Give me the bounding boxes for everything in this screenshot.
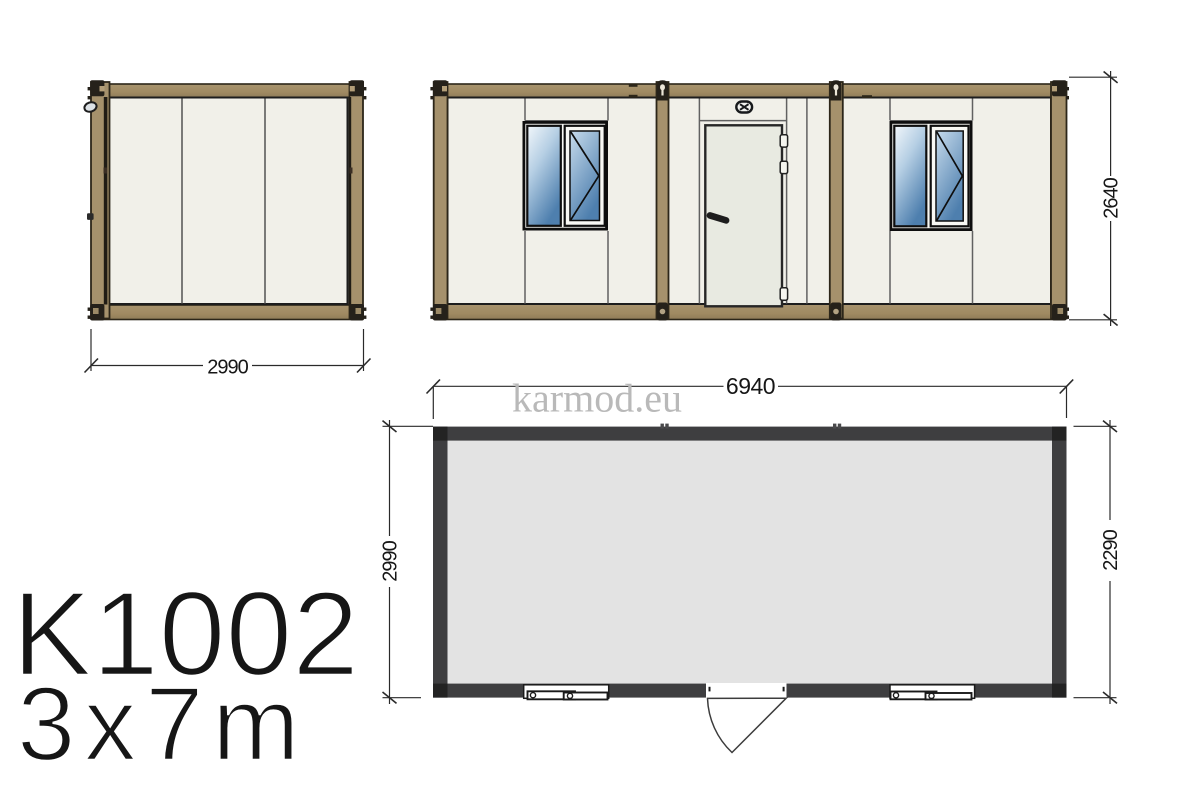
svg-text:3x7m: 3x7m — [17, 666, 308, 783]
svg-text:karmod.eu: karmod.eu — [512, 376, 682, 421]
svg-text:2990: 2990 — [380, 540, 402, 581]
svg-text:2640: 2640 — [1101, 177, 1123, 218]
svg-text:2290: 2290 — [1100, 529, 1122, 570]
svg-text:2990: 2990 — [207, 357, 248, 379]
svg-text:6940: 6940 — [726, 373, 775, 399]
